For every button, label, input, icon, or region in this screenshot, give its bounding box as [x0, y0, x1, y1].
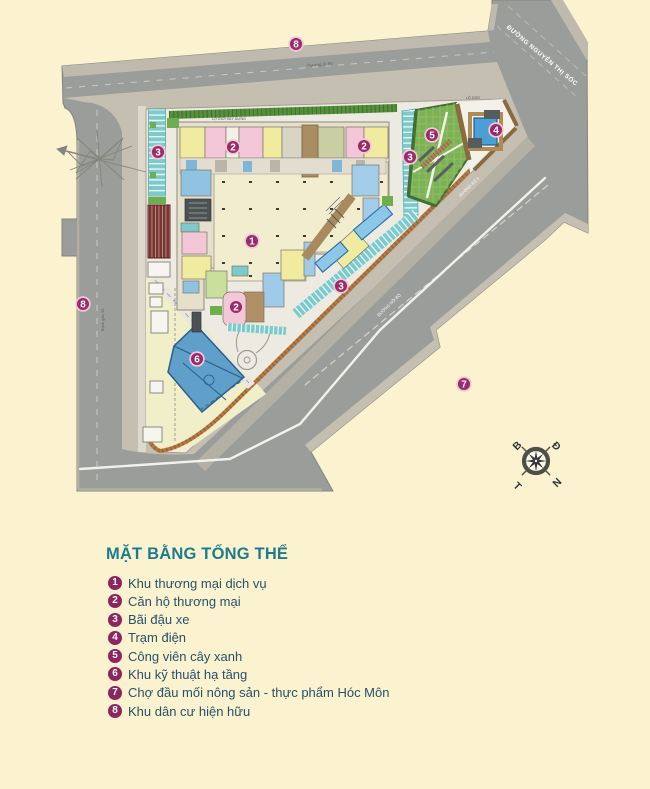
svg-text:1: 1 [249, 237, 255, 248]
svg-text:3: 3 [338, 282, 344, 293]
svg-text:Rạch gòn 30: Rạch gòn 30 [100, 308, 105, 331]
svg-text:3: 3 [155, 148, 161, 159]
svg-text:LỘ GIỚI XÂY DỰNG: LỘ GIỚI XÂY DỰNG [212, 116, 246, 121]
svg-text:8: 8 [293, 40, 299, 51]
svg-text:2: 2 [361, 142, 367, 153]
svg-text:2: 2 [233, 303, 239, 314]
svg-text:3: 3 [407, 153, 413, 164]
svg-text:2: 2 [230, 143, 236, 154]
svg-text:8: 8 [80, 300, 86, 311]
svg-text:6: 6 [194, 355, 200, 366]
svg-text:4: 4 [493, 126, 499, 137]
svg-text:LỘ GIỚI: LỘ GIỚI [466, 95, 480, 100]
svg-text:5: 5 [429, 131, 435, 142]
svg-text:7: 7 [461, 380, 467, 391]
